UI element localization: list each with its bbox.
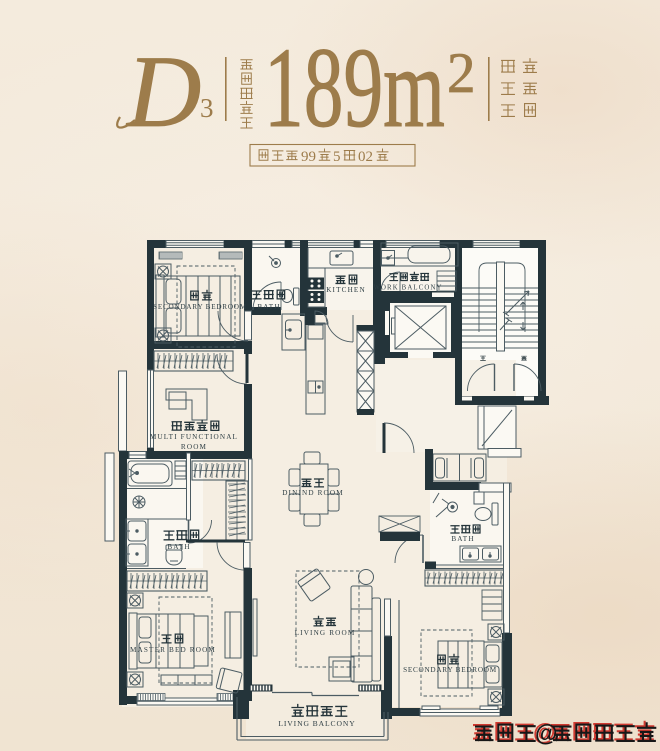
- svg-text:02: 02: [358, 149, 373, 165]
- svg-text:D: D: [125, 35, 201, 149]
- svg-text:DININD ROOM: DININD ROOM: [282, 489, 344, 497]
- svg-text:2: 2: [447, 42, 476, 105]
- svg-text:LIVING ROOM: LIVING ROOM: [295, 629, 356, 637]
- svg-text:MASTER BED ROOM: MASTER BED ROOM: [130, 646, 216, 654]
- svg-text:5: 5: [333, 149, 341, 165]
- svg-text:SECONDARY BEDROOM: SECONDARY BEDROOM: [153, 303, 247, 311]
- svg-text:3: 3: [200, 93, 214, 123]
- svg-text:BATH: BATH: [257, 303, 280, 311]
- svg-text:MULTI FUNCTIONAL: MULTI FUNCTIONAL: [150, 433, 238, 441]
- svg-text:WORK BALCONY: WORK BALCONY: [373, 285, 442, 292]
- svg-text:99: 99: [301, 149, 316, 165]
- svg-text:BATH: BATH: [167, 543, 190, 551]
- svg-text:KITCHEN: KITCHEN: [326, 286, 366, 294]
- svg-text:ROOM: ROOM: [181, 443, 207, 451]
- svg-text:BATH: BATH: [451, 535, 474, 543]
- svg-text:189m: 189m: [264, 24, 445, 151]
- svg-text:SECONDARY BEDROOM: SECONDARY BEDROOM: [403, 666, 497, 674]
- svg-text:LIVING BALCONY: LIVING BALCONY: [278, 719, 355, 728]
- svg-text:@: @: [535, 720, 557, 746]
